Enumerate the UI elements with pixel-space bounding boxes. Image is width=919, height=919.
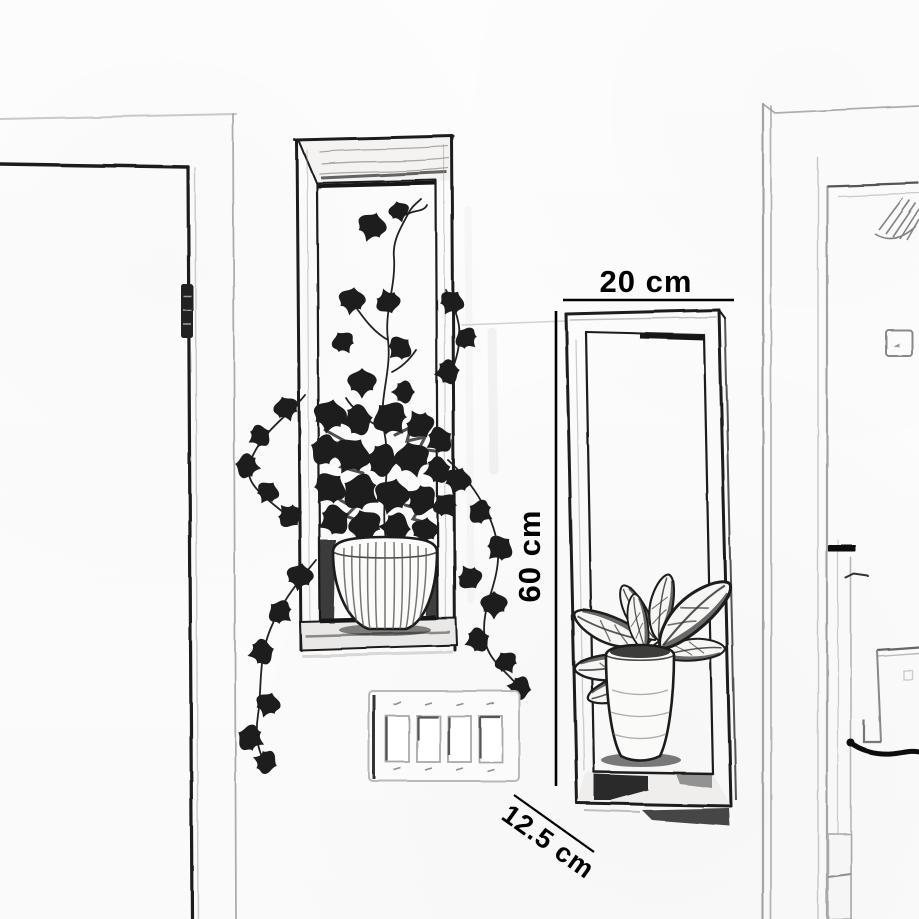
ivy-leaf bbox=[249, 746, 281, 777]
width-dimension-label: 20 cm bbox=[600, 264, 693, 299]
switch-rocker bbox=[386, 716, 409, 762]
right-doorway bbox=[763, 104, 919, 919]
left-casing-head-line bbox=[0, 114, 236, 119]
doorway-light-switch bbox=[886, 330, 912, 356]
ivy-leaf bbox=[391, 380, 415, 403]
switch-rocker bbox=[479, 716, 502, 762]
ivy-leaf bbox=[347, 368, 376, 399]
doorway-casing-top bbox=[763, 104, 919, 113]
ivy-leaf bbox=[251, 688, 284, 721]
ivy-leaf bbox=[244, 636, 277, 668]
frame-left-stile bbox=[566, 314, 577, 803]
sketch-canvas: 20 cm 60 cm 12.5 cm bbox=[0, 0, 919, 919]
depth-dimension: 12.5 cm bbox=[496, 795, 600, 885]
door-right-edge bbox=[188, 167, 192, 919]
height-dimension-label: 60 cm bbox=[512, 510, 547, 603]
frame-right-stile bbox=[719, 310, 731, 806]
width-dimension: 20 cm bbox=[563, 264, 734, 300]
door-top-edge bbox=[0, 164, 188, 167]
ivy-leaf bbox=[243, 421, 275, 453]
door-hinge bbox=[181, 284, 193, 338]
ivy-leaf bbox=[434, 285, 469, 320]
doorway-baseboard bbox=[828, 834, 851, 919]
interior-shelf-edge bbox=[828, 545, 856, 552]
ivy-leaf bbox=[263, 595, 299, 631]
ivy-leaf bbox=[390, 437, 434, 482]
ivy-leaf bbox=[328, 327, 360, 359]
ivy-leaf bbox=[233, 452, 263, 481]
depth-dimension-label: 12.5 cm bbox=[496, 799, 600, 885]
ivy-leaf bbox=[370, 474, 414, 519]
ivy-leaf bbox=[271, 497, 307, 533]
light-switch-plate bbox=[369, 691, 519, 781]
frame-right-stile bbox=[452, 136, 455, 650]
ivy-leaf bbox=[232, 720, 269, 757]
left-door bbox=[0, 114, 236, 919]
ivy-leaf bbox=[251, 477, 283, 509]
ivy-leaf bbox=[381, 331, 417, 367]
ivy-leaf bbox=[336, 285, 368, 318]
hallway-sketch: 20 cm 60 cm 12.5 cm bbox=[0, 0, 919, 919]
hanging-shade bbox=[875, 198, 919, 240]
appliance-handle bbox=[864, 720, 881, 742]
interior-appliance bbox=[847, 647, 919, 754]
ivy-stems bbox=[249, 199, 518, 764]
ivy-leaf bbox=[352, 208, 390, 247]
power-cord bbox=[851, 743, 919, 754]
left-casing-outer-edge bbox=[233, 114, 236, 919]
switch-rocker bbox=[448, 716, 471, 762]
left-casing-inner-edge bbox=[195, 168, 198, 919]
switch-rocker bbox=[417, 716, 440, 762]
plant-pot bbox=[601, 645, 681, 767]
